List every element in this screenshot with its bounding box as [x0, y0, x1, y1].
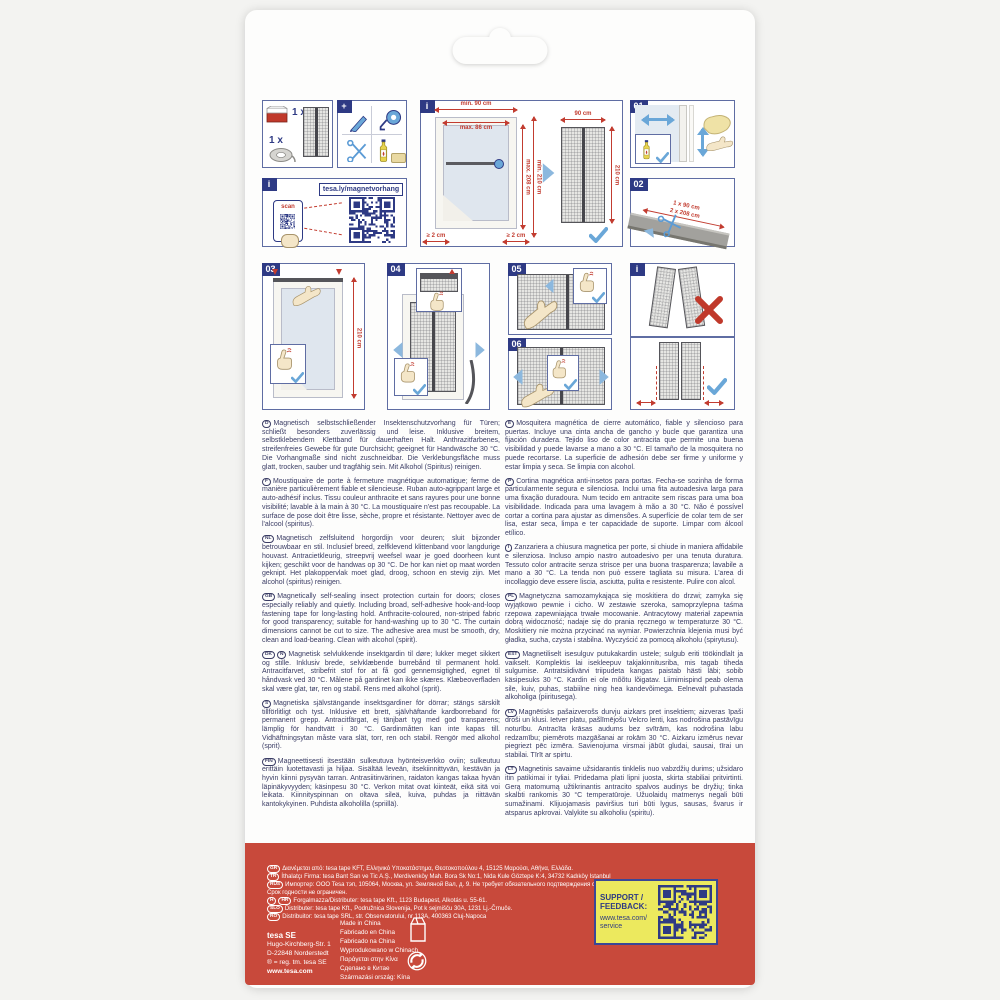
- arrow-right-icon: [598, 367, 611, 387]
- description-fr: FMoustiquaire de porte à fermeture magné…: [262, 478, 500, 530]
- dim-max-height: max. 208 cm: [525, 159, 531, 195]
- descriptions-column-right: EMosquitera magnética de cierre automáti…: [505, 420, 743, 824]
- description-it: IZanzariera a chiusura magnetica per por…: [505, 544, 743, 588]
- description-gb: GBMagnetically self-sealing insect prote…: [262, 593, 500, 645]
- distributor-line: RUSИмпортер: ООО Tesa тэп, 105064, Москв…: [267, 881, 630, 889]
- phone-qr-preview: [280, 214, 295, 229]
- company-website: www.tesa.com: [267, 967, 331, 976]
- step-04-badge: 04: [387, 263, 405, 276]
- distributor-line: SLODistributer: tesa tape Kft., Podružni…: [267, 905, 630, 913]
- checkmark-icon: [589, 227, 608, 243]
- top-detail-inset: [416, 268, 462, 312]
- company-address: tesa SE Hugo-Kirchberg-Str. 1 D-22848 No…: [267, 931, 331, 976]
- press-hint-inset: [394, 358, 428, 396]
- arrow-right-icon: [541, 159, 557, 187]
- lang-badge-gb: GB: [262, 593, 275, 601]
- support-text: SUPPORT / FEEDBACK: www.tesa.com/ servic…: [600, 893, 656, 932]
- panel-step-06: 06: [508, 338, 612, 410]
- scan-label: scan: [274, 204, 302, 210]
- alcohol-hint-inset: [635, 134, 671, 164]
- arrow-right-icon: [474, 340, 487, 360]
- press-hint-inset: [270, 344, 306, 384]
- panel-step-03: 03 210 cm: [262, 263, 365, 410]
- description-et: ESTMagnetiliselt isesulguv putukakardin …: [505, 651, 743, 703]
- press-hint-inset: [573, 268, 607, 304]
- distributor-list: GRΔιανέμεται από: tesa tape KFT, Ελληνικ…: [267, 865, 630, 921]
- package-back-panel: 1 x 1 x + i tesa.ly/magnetvorhang sca: [245, 10, 755, 988]
- dim-gap-right: ≥ 2 cm: [507, 233, 526, 239]
- lang-badge-lv: LV: [505, 709, 517, 717]
- thumb-press-icon: [398, 361, 418, 383]
- company-name: tesa SE: [267, 931, 331, 940]
- info-badge: i: [262, 178, 277, 191]
- qr-url-label: tesa.ly/magnetvorhang: [319, 183, 403, 196]
- cross-icon: [693, 294, 725, 326]
- description-pt: PCortina magnética anti-insetos para por…: [505, 478, 743, 539]
- description-sv: SMagnetiska självstängande insektsgardin…: [262, 700, 500, 752]
- distributor-line: Срок годности не ограничен.: [267, 889, 630, 897]
- red-arrow-left: [272, 269, 278, 275]
- lang-badge-it: I: [505, 544, 512, 552]
- green-dot-recycling-icon: [407, 951, 427, 971]
- panel-step-02: 02 1 x 90 cm 2 x 208 cm: [630, 178, 735, 247]
- euro-hanger-slot: [445, 26, 555, 76]
- lang-badge-nl: NL: [262, 535, 274, 543]
- dim-height: 210 cm: [356, 328, 362, 348]
- carton-recycling-icon: [407, 915, 429, 943]
- panel-box-contents: 1 x 1 x: [262, 100, 333, 168]
- arrow-horizontal-icon: [643, 118, 673, 121]
- panel-tools-needed: +: [337, 100, 407, 168]
- checkmark-icon: [592, 292, 605, 303]
- descriptions-column-left: DMagnetisch selbstschließender Insektens…: [262, 420, 500, 815]
- distributor-line: HHRForgalmazza/Distributer: tesa tape Kf…: [267, 897, 630, 905]
- lang-badge-fi: FIN: [262, 758, 276, 766]
- distributor-line: RODistribuitor: tesa tape SRL, str. Obse…: [267, 913, 630, 921]
- panel-step-05: 05: [508, 263, 612, 335]
- panel-hint-wrong-right: i: [630, 263, 735, 410]
- door-frame: [435, 117, 517, 229]
- lang-badge-es: E: [505, 420, 514, 428]
- product-box-icon: [266, 106, 288, 124]
- scissors-icon: [346, 140, 368, 162]
- lang-badge-de: D: [262, 420, 271, 428]
- checkmark-icon: [707, 378, 727, 395]
- hand-icon: [705, 131, 735, 153]
- tape-roll-icon: [268, 147, 296, 164]
- dim-max-width: max. 86 cm: [460, 125, 492, 131]
- lang-badge-pt: P: [505, 478, 514, 486]
- description-nl: NLMagnetisch zelfsluitend horgordijn voo…: [262, 535, 500, 587]
- panel-qr-info: i tesa.ly/magnetvorhang scan: [262, 178, 407, 247]
- phone-scan-icon: scan: [273, 200, 303, 242]
- thumb-press-icon: [274, 347, 295, 371]
- sponge-icon: [391, 153, 406, 163]
- lang-badge-et: EST: [505, 651, 520, 659]
- description-lt: LTMagnetinis savaime užsidarantis tinkle…: [505, 766, 743, 818]
- dim-gap-left: ≥ 2 cm: [427, 233, 446, 239]
- distributor-line: TRİthalatçı Firma: tesa Bant San ve Tic …: [267, 873, 630, 881]
- curtain-curl: [464, 360, 480, 404]
- thumb-press-icon: [550, 358, 569, 379]
- info-badge: i: [420, 100, 435, 113]
- lang-badge-pl: PL: [505, 593, 517, 601]
- right-example: [631, 338, 734, 410]
- dim-curtain-width: 90 cm: [574, 111, 591, 117]
- checkmark-icon: [291, 372, 304, 383]
- curtain-icon: [303, 107, 329, 157]
- checkmark-icon: [564, 379, 577, 390]
- checkmark-icon: [413, 384, 426, 395]
- curtain-diagram: [561, 127, 605, 223]
- lang-badge-no: N: [277, 651, 286, 659]
- tape-measure-icon: [378, 108, 404, 132]
- panel-measuring: i min. 90 cm max. 86 cm max. 208 cm min.…: [420, 100, 623, 247]
- qr-code: [349, 197, 395, 243]
- panel-step-04: 04: [387, 263, 490, 410]
- panel-step-01: 01: [630, 100, 735, 168]
- checkmark-icon: [656, 152, 669, 163]
- support-feedback-box: SUPPORT / FEEDBACK: www.tesa.com/ servic…: [594, 879, 718, 945]
- lang-badge-sv: S: [262, 700, 271, 708]
- lang-badge-dk: DK: [262, 651, 275, 659]
- description-pl: PLMagnetyczna samozamykająca się moskiti…: [505, 593, 743, 645]
- thumb-press-icon: [427, 291, 447, 311]
- footer: GRΔιανέμεται από: tesa tape KFT, Ελληνικ…: [245, 843, 755, 985]
- dim-curtain-height: 210 cm: [614, 165, 620, 185]
- thumb-press-icon: [577, 271, 597, 292]
- finger-icon: [281, 234, 299, 248]
- wrong-example: [631, 264, 734, 336]
- support-qr-code: [658, 885, 712, 939]
- alcohol-bottle-icon: [377, 137, 390, 164]
- dim-min-width: min. 90 cm: [460, 101, 491, 107]
- press-hint-inset: [547, 355, 579, 391]
- description-de: DMagnetisch selbstschließender Insektens…: [262, 420, 500, 472]
- red-arrow-right: [336, 269, 342, 275]
- description-lv: LVMagnētisks pašaizverošs durvju aizkars…: [505, 709, 743, 761]
- distributor-line: GRΔιανέμεται από: tesa tape KFT, Ελληνικ…: [267, 865, 630, 873]
- alcohol-bottle-icon: [641, 137, 652, 162]
- lang-badge-lt: LT: [505, 766, 517, 774]
- quantity-tape: 1 x: [269, 135, 283, 146]
- description-es: EMosquitera magnética de cierre automáti…: [505, 420, 743, 472]
- lang-badge-fr: F: [262, 478, 271, 486]
- footer-icons: [407, 915, 431, 976]
- description-dk: DKNMagnetisk selvlukkende insektgardin t…: [262, 651, 500, 695]
- support-url: www.tesa.com/: [600, 915, 656, 924]
- description-fi: FINMagneettisesti itsestään sulkeutuva h…: [262, 758, 500, 810]
- pencil-icon: [346, 110, 368, 132]
- arrow-left-icon: [391, 340, 404, 360]
